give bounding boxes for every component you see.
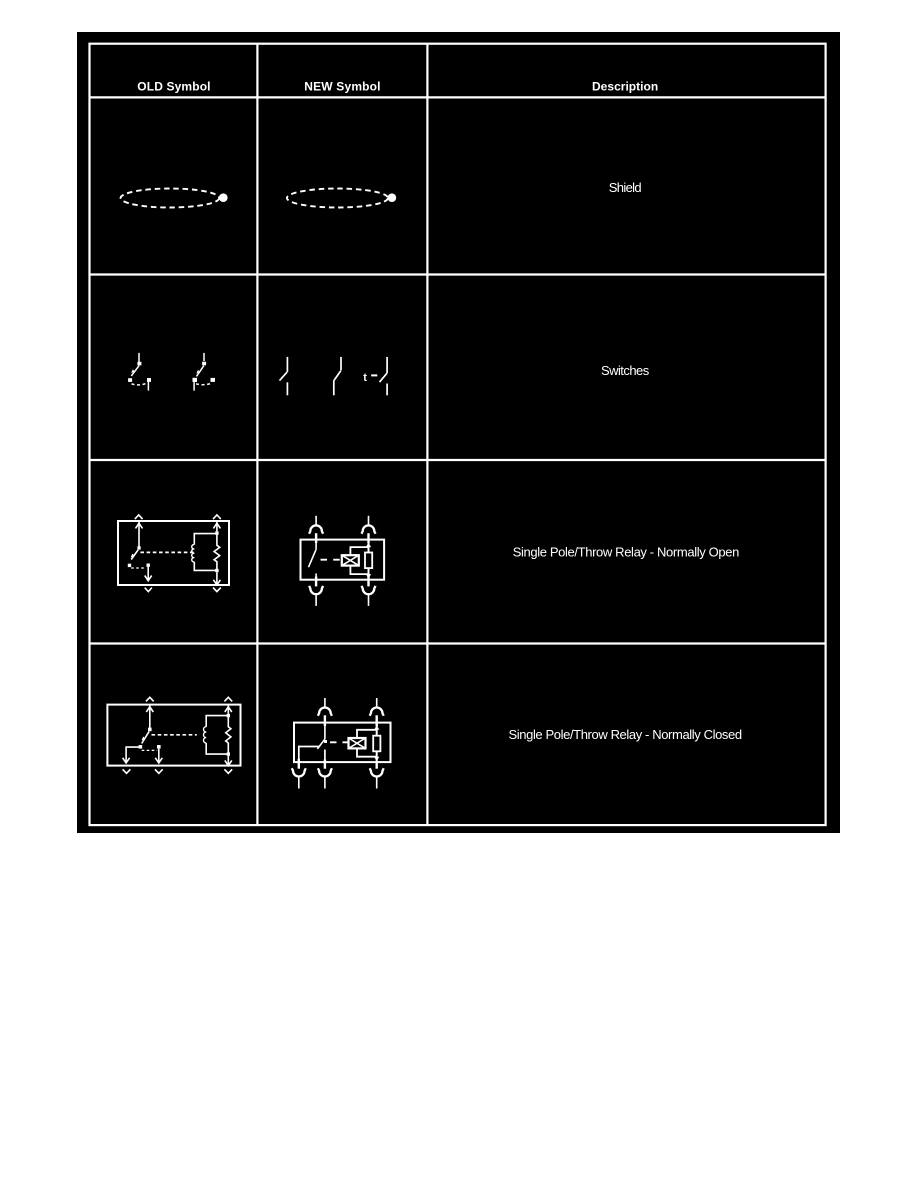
svg-text:t: t: [363, 372, 367, 384]
svg-text:Description: Description: [592, 79, 658, 93]
svg-text:OLD Symbol: OLD Symbol: [137, 79, 210, 93]
svg-text:Switches: Switches: [601, 363, 650, 378]
svg-text:Single Pole/Throw Relay - Norm: Single Pole/Throw Relay - Normally Open: [513, 545, 740, 560]
svg-text:Shield: Shield: [609, 180, 642, 195]
svg-text:Single Pole/Throw Relay - Norm: Single Pole/Throw Relay - Normally Close…: [509, 727, 743, 742]
svg-text:NEW Symbol: NEW Symbol: [304, 79, 380, 93]
